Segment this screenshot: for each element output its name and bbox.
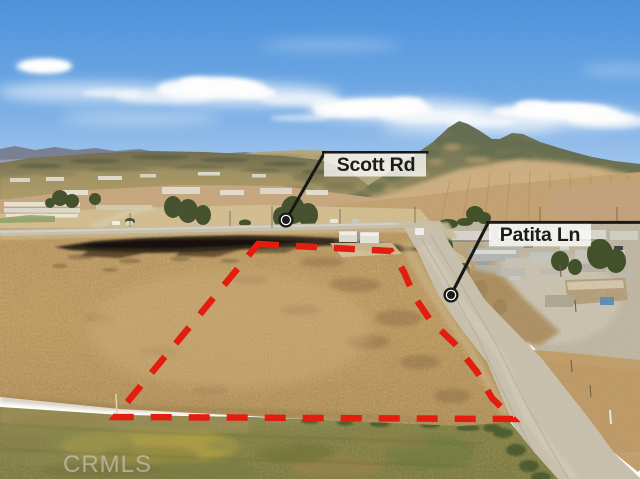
svg-text:CRMLS: CRMLS (63, 451, 152, 478)
